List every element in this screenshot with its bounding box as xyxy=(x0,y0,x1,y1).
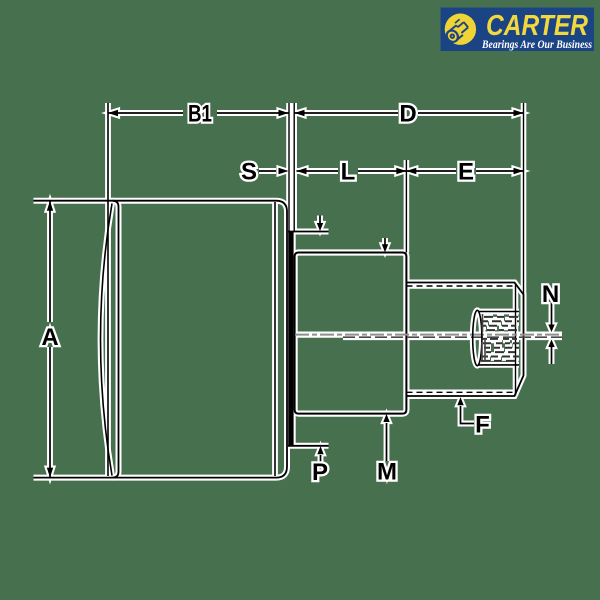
svg-text:D: D xyxy=(399,101,416,128)
svg-text:E: E xyxy=(458,159,474,186)
svg-text:Bearings Are Our Business: Bearings Are Our Business xyxy=(481,37,592,51)
svg-text:L: L xyxy=(341,159,356,186)
svg-text:B1: B1 xyxy=(188,101,212,128)
svg-text:A: A xyxy=(41,324,58,351)
svg-text:M: M xyxy=(377,459,397,486)
svg-text:F: F xyxy=(475,412,490,439)
svg-text:S: S xyxy=(241,159,257,186)
svg-text:P: P xyxy=(312,459,328,486)
svg-text:N: N xyxy=(542,281,559,308)
